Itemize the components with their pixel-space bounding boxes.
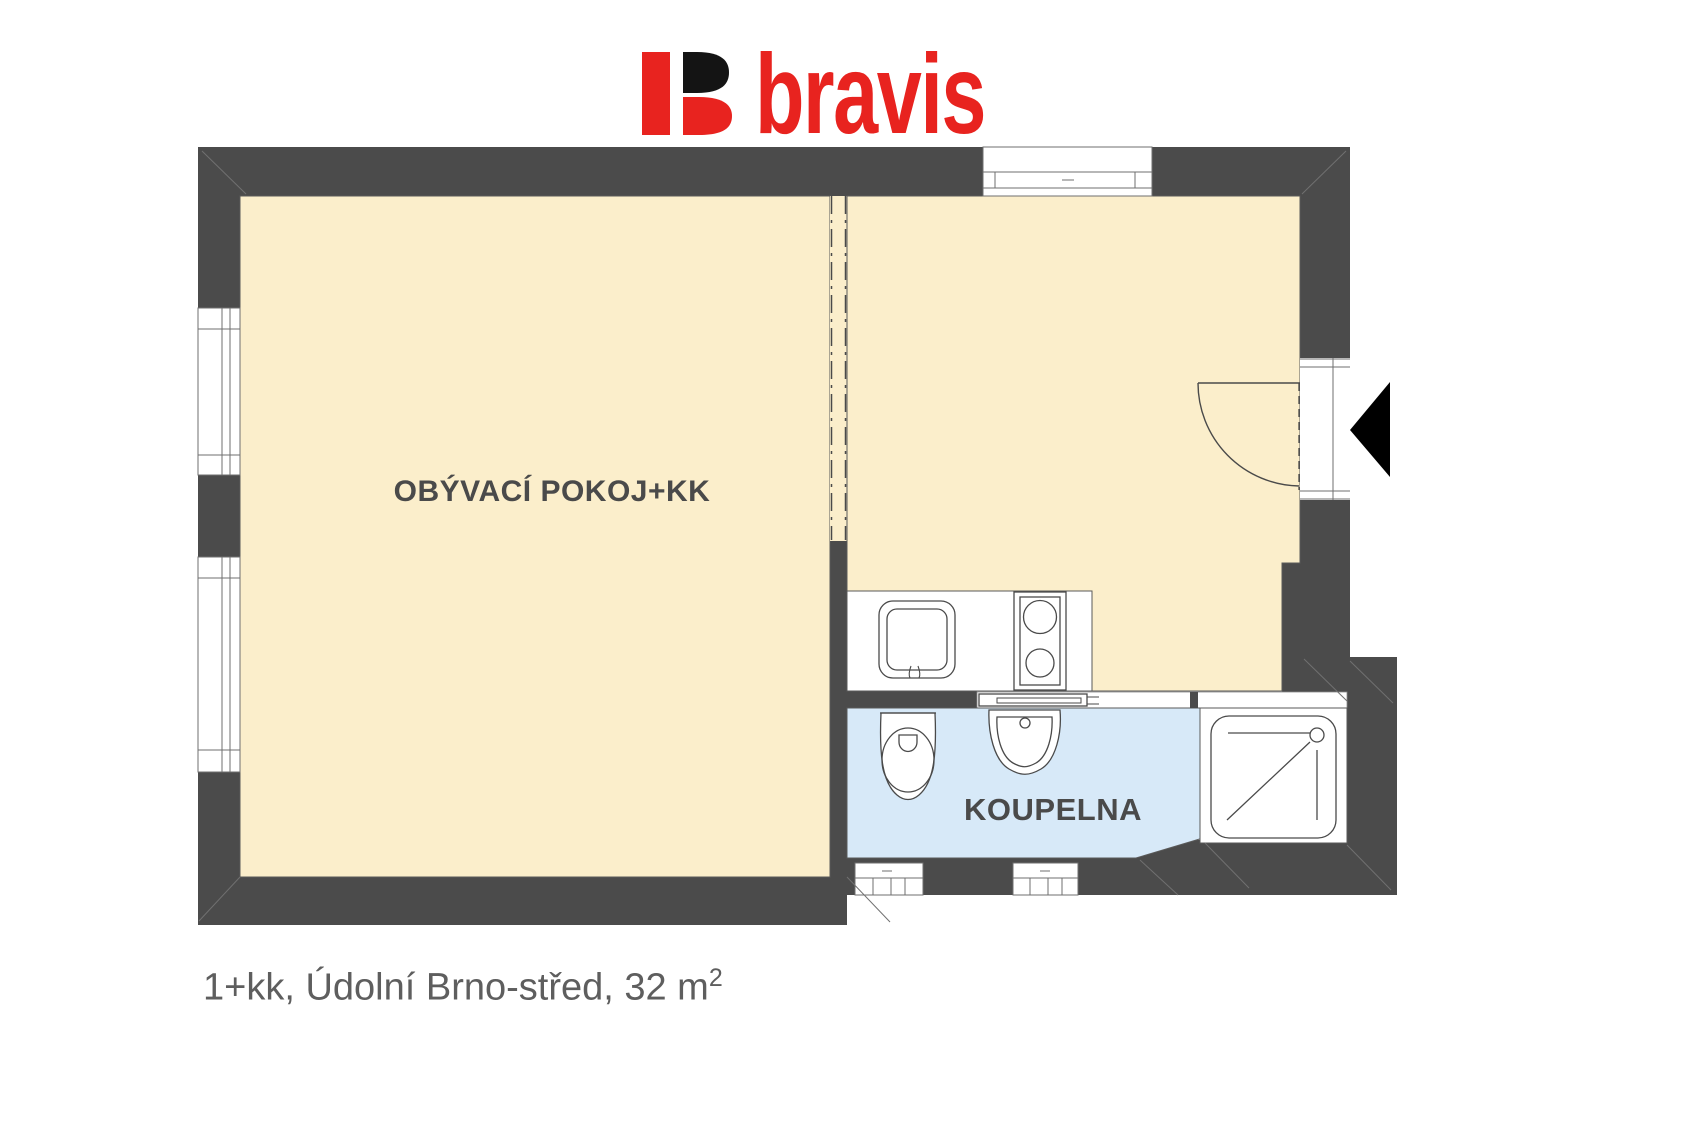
- living-room-label: OBÝVACÍ POKOJ+KK: [394, 475, 711, 509]
- logo-text: bravis: [755, 31, 985, 157]
- wall-center: [830, 540, 847, 877]
- divider-strip: [830, 196, 847, 541]
- caption-superscript: 2: [709, 964, 723, 992]
- floor-plan-page: bravis: [0, 0, 1697, 1125]
- logo-b-bottom-lobe: [683, 97, 732, 135]
- bravis-logo: bravis: [642, 31, 985, 157]
- entrance-arrow-icon: [1350, 382, 1390, 477]
- vent-right: [1013, 863, 1078, 895]
- wall-top: [198, 147, 1350, 196]
- bathroom-label: KOUPELNA: [964, 792, 1142, 828]
- wall-right-wide: [1282, 563, 1350, 692]
- wall-left: [198, 147, 240, 925]
- wall-bottom: [198, 877, 847, 925]
- logo-b-top-lobe: [683, 52, 729, 93]
- vent-left: [855, 863, 923, 895]
- living-room-floor: [240, 196, 830, 877]
- wall-right-mid: [1300, 500, 1350, 563]
- floor-plan-drawing: bravis: [0, 0, 1697, 1125]
- band-wall-tick: [1190, 692, 1198, 708]
- stove: [1014, 592, 1066, 690]
- wall-right-upper: [1300, 147, 1350, 358]
- window-left-lower: [198, 557, 240, 772]
- kitchen-sink: [879, 601, 955, 678]
- caption-text: 1+kk, Údolní Brno-střed, 32 m: [203, 967, 709, 1009]
- entrance-door-opening: [1300, 358, 1350, 500]
- wall-under-counter: [847, 691, 977, 708]
- window-left-upper: [198, 308, 240, 475]
- listing-caption: 1+kk, Údolní Brno-střed, 32 m2: [203, 964, 723, 1010]
- logo-bar: [642, 52, 670, 135]
- logo-red-parts: bravis: [642, 31, 985, 157]
- sliding-door-panel: [979, 694, 1087, 706]
